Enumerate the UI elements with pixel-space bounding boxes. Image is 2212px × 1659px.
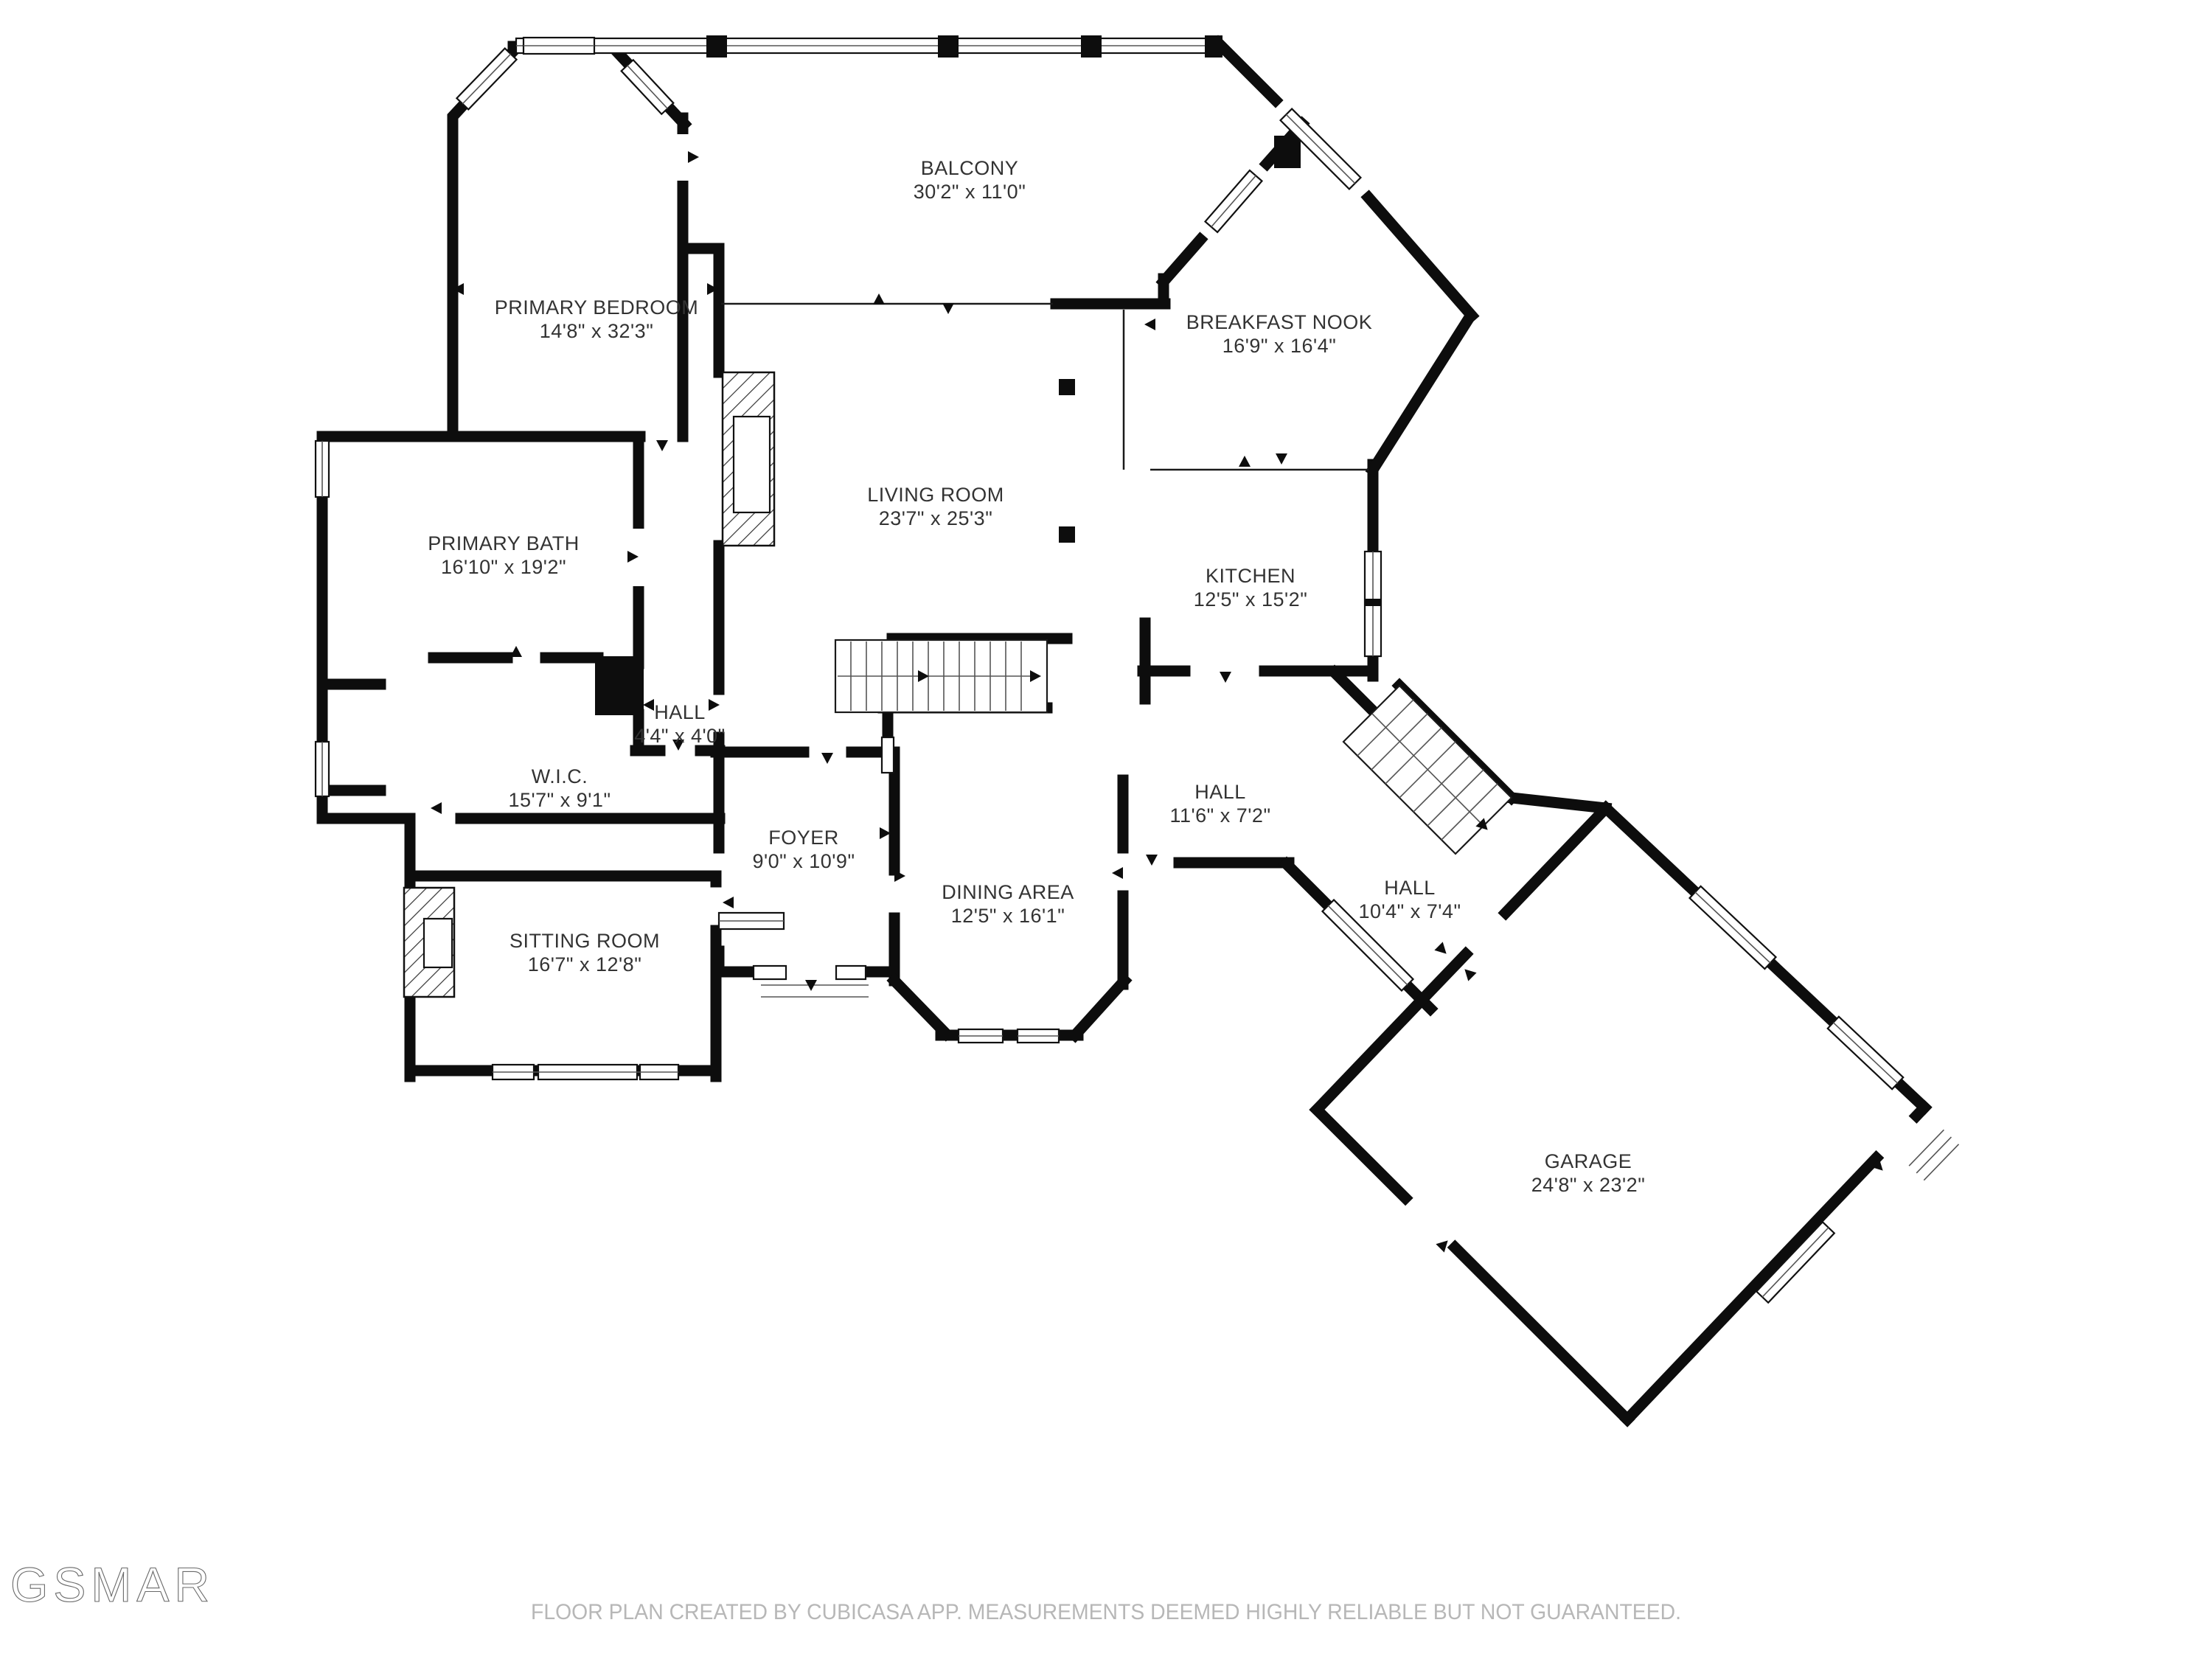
room-name: FOYER <box>768 827 839 849</box>
room-name: BREAKFAST NOOK <box>1186 311 1373 333</box>
room-dims: 30'2" x 11'0" <box>914 181 1026 203</box>
room-dims: 23'7" x 25'3" <box>879 507 993 529</box>
staircase-main <box>835 640 1047 712</box>
room-name: SITTING ROOM <box>509 930 660 952</box>
room-dims: 12'5" x 15'2" <box>1194 588 1308 611</box>
room-label-balcony: BALCONY 30'2" x 11'0" <box>914 157 1026 203</box>
room-name: DINING AREA <box>942 881 1074 903</box>
room-label-breakfast-nook: BREAKFAST NOOK 16'9" x 16'4" <box>1186 311 1373 357</box>
room-name: PRIMARY BATH <box>428 532 580 554</box>
room-label-primary-bedroom: PRIMARY BEDROOM 14'8" x 32'3" <box>495 296 699 342</box>
room-label-dining-area: DINING AREA 12'5" x 16'1" <box>942 881 1074 927</box>
room-label-kitchen: KITCHEN 12'5" x 15'2" <box>1194 565 1308 611</box>
room-name: HALL <box>1194 781 1246 803</box>
room-dims: 16'7" x 12'8" <box>528 953 642 975</box>
room-label-hall-kitchen: HALL 11'6" x 7'2" <box>1169 781 1270 827</box>
room-dims: 14'8" x 32'3" <box>540 320 654 342</box>
room-dims: 10'4" x 7'4" <box>1358 900 1461 922</box>
columns <box>1059 379 1075 543</box>
room-dims: 15'7" x 9'1" <box>508 789 611 811</box>
room-dims: 9'0" x 10'9" <box>752 850 855 872</box>
room-name: W.I.C. <box>532 765 588 787</box>
room-name: HALL <box>1384 877 1436 899</box>
gsmar-watermark: GSMAR <box>10 1557 215 1612</box>
windows <box>316 35 1959 1303</box>
walls <box>322 43 1924 1419</box>
fireplace-living <box>723 372 774 546</box>
room-label-garage: GARAGE 24'8" x 23'2" <box>1531 1150 1646 1196</box>
room-dims: 24'8" x 23'2" <box>1531 1174 1646 1196</box>
fireplace-sitting <box>404 888 454 997</box>
floor-plan: BALCONY 30'2" x 11'0" PRIMARY BEDROOM 14… <box>0 0 2212 1659</box>
room-dims: 12'5" x 16'1" <box>951 905 1065 927</box>
room-dims: 11'6" x 7'2" <box>1169 804 1270 827</box>
room-name: BALCONY <box>921 157 1019 179</box>
room-name: PRIMARY BEDROOM <box>495 296 699 319</box>
room-label-wic: W.I.C. 15'7" x 9'1" <box>508 765 611 811</box>
room-label-living-room: LIVING ROOM 23'7" x 25'3" <box>867 484 1004 529</box>
room-dims: 16'10" x 19'2" <box>441 556 566 578</box>
room-name: LIVING ROOM <box>867 484 1004 506</box>
room-label-foyer: FOYER 9'0" x 10'9" <box>752 827 855 872</box>
exterior-steps <box>1909 1130 1958 1180</box>
room-name: GARAGE <box>1545 1150 1632 1172</box>
room-label-primary-bath: PRIMARY BATH 16'10" x 19'2" <box>428 532 580 578</box>
room-dims: 4'4" x 4'0" <box>634 725 726 747</box>
disclaimer-text: FLOOR PLAN CREATED BY CUBICASA APP. MEAS… <box>531 1600 1681 1624</box>
room-label-sitting-room: SITTING ROOM 16'7" x 12'8" <box>509 930 660 975</box>
room-label-hall-garage: HALL 10'4" x 7'4" <box>1358 877 1461 922</box>
room-dims: 16'9" x 16'4" <box>1222 335 1337 357</box>
room-name: KITCHEN <box>1206 565 1295 587</box>
room-name: HALL <box>654 701 706 723</box>
